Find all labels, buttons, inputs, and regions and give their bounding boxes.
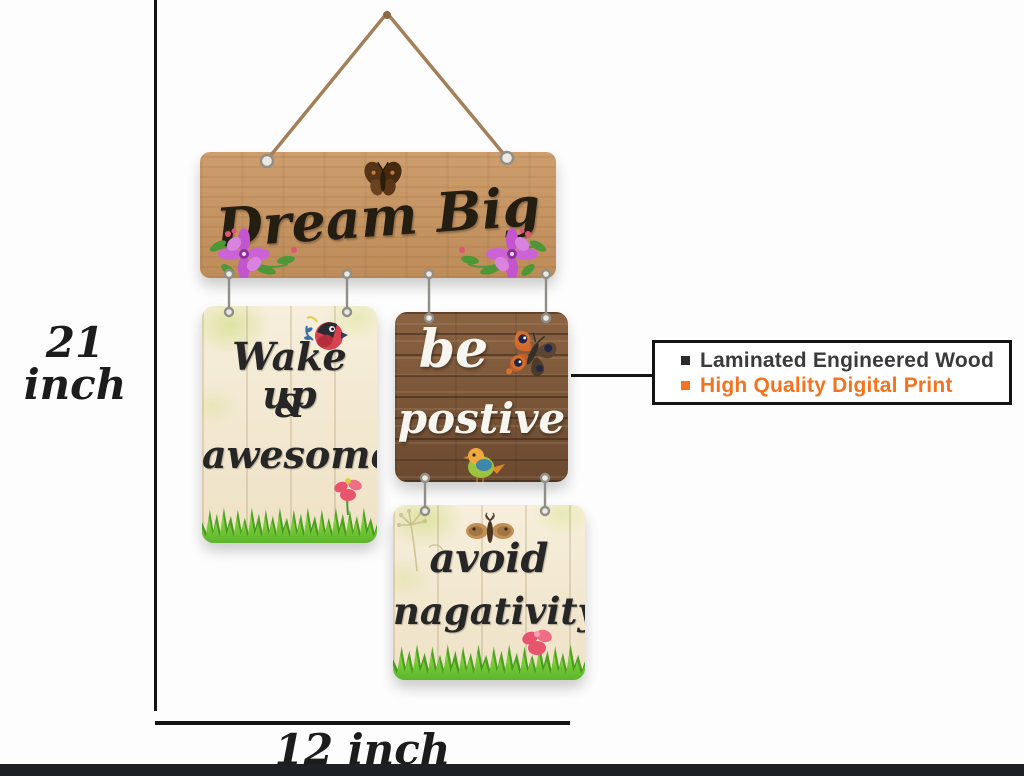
board-dream-big: Dream Big bbox=[200, 152, 556, 278]
height-dimension-line bbox=[154, 0, 157, 711]
feature-row-material: Laminated Engineered Wood bbox=[681, 350, 1009, 371]
rope-hanger-icon bbox=[267, 13, 507, 160]
board-bottom-line2: nagativity bbox=[393, 593, 585, 630]
orange-butterfly-icon bbox=[506, 322, 562, 384]
grass-icon bbox=[393, 638, 585, 680]
board-middle-line2: postive bbox=[395, 398, 568, 440]
feature-label-material: Laminated Engineered Wood bbox=[700, 350, 994, 371]
moth-icon bbox=[465, 509, 515, 551]
feature-callout-box: Laminated Engineered Wood High Quality D… bbox=[652, 340, 1012, 405]
board-left-line2: & bbox=[202, 390, 377, 422]
flower-icon bbox=[452, 226, 552, 278]
flower-icon bbox=[204, 226, 304, 278]
board-wake-up-awesome: Wake up & awesome bbox=[202, 306, 377, 543]
feature-row-print: High Quality Digital Print bbox=[681, 375, 1009, 396]
feature-label-print: High Quality Digital Print bbox=[700, 375, 953, 396]
board-avoid-nagativity: avoid nagativity bbox=[393, 505, 585, 680]
bottom-bar bbox=[0, 764, 1024, 776]
rope-knot-icon bbox=[383, 11, 391, 19]
product-image: 21 inch 12 inch Dream Big bbox=[0, 0, 1024, 776]
callout-connector-line bbox=[571, 374, 652, 377]
flower-icon bbox=[331, 475, 365, 517]
height-dimension-label: 21 inch bbox=[0, 322, 150, 406]
butterfly-icon bbox=[360, 158, 406, 202]
dandelion-icon bbox=[395, 507, 447, 573]
red-bird-icon bbox=[303, 314, 349, 358]
bullet-square-icon bbox=[681, 356, 690, 365]
bullet-square-icon bbox=[681, 381, 690, 390]
board-be-postive: be postive bbox=[395, 312, 568, 482]
flower-icon bbox=[519, 626, 555, 664]
board-left-line3: awesome bbox=[202, 436, 377, 474]
colorful-bird-icon bbox=[463, 446, 507, 482]
